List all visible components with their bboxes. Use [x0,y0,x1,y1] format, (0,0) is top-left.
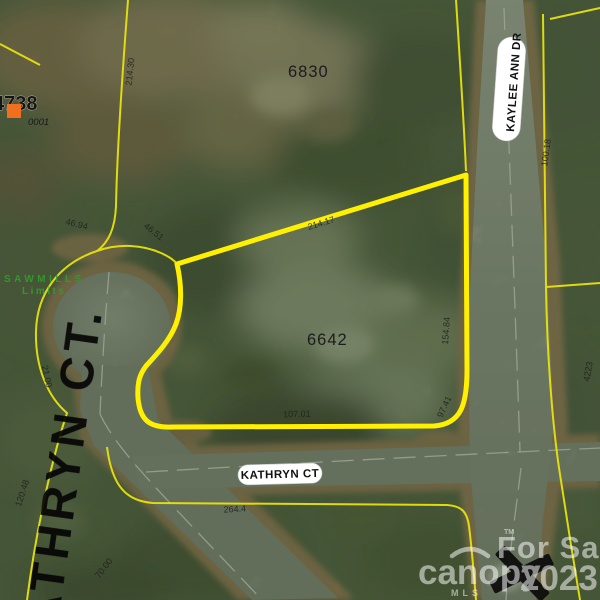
street-pill-kathryn: KATHRYN CT [238,463,322,485]
watermark-year: 2023 [520,559,598,598]
parcel-number-highlighted: 6642 [307,331,348,349]
street-label-kathryn-pill: KATHRYN CT [241,468,320,482]
corner-parcel-subnumber: 0001 [28,117,49,128]
dimension-bottom: 107.01 [283,409,311,420]
watermark-mls: MLS [451,588,482,598]
map-canvas: 214.30 46.94 46.51 214.17 154.84 97.41 1… [0,0,600,600]
municipal-limits: Limits [22,286,66,297]
orange-parcel-marker [7,104,21,118]
dimension-east-upper: 154.84 [440,317,452,345]
municipal-name: SAWMILLS [4,274,85,285]
parcel-number-north: 6830 [288,63,329,81]
aerial-parcel-map: 214.30 46.94 46.51 214.17 154.84 97.41 1… [0,0,600,600]
dimension-south-line: 264.4 [223,503,246,514]
